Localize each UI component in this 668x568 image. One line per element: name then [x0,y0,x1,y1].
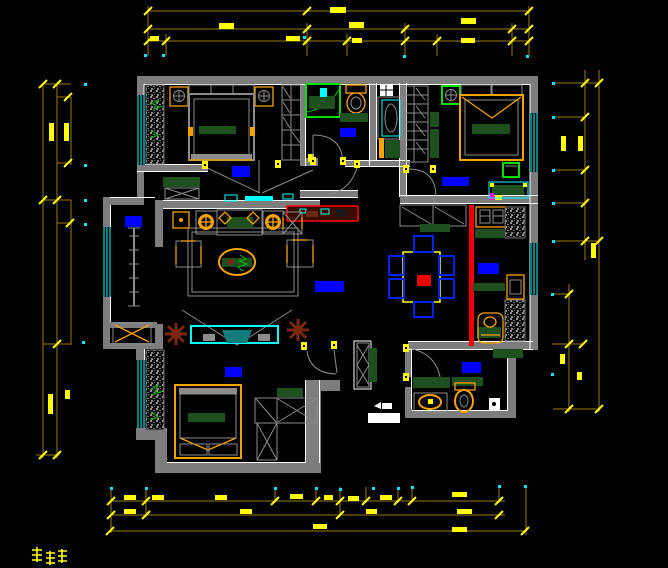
sink-counter [476,207,506,227]
side-table-small [173,212,189,228]
wash-basin-bottom [414,393,447,412]
bedroom-bottom-left [146,350,317,460]
shelf-wardrobe [282,85,301,160]
floor-drain [489,398,500,410]
room-label-bedroom-tl [232,166,250,177]
shelved-wardrobe [406,86,428,162]
desk-chair [503,163,519,177]
dimension-text-blocks [48,7,596,532]
floorplan-drawing [0,0,668,568]
tall-cabinet-hatch [505,300,525,341]
room-label-kitchen [478,263,499,274]
lamp-table-right [263,211,283,234]
table-center [417,275,431,286]
bedroom-tr-door [403,165,436,197]
bathroom-top [306,84,403,168]
refrigerator [505,207,525,238]
double-bed-with-drawers [175,385,241,458]
plant-right [287,319,309,341]
nightstand-right [255,87,273,106]
room-label-bedroom-bl [225,367,242,377]
sliding-door-symbol [202,154,314,201]
room-label-entry [462,362,481,373]
room-label-bedroom-tr [442,177,469,186]
room-label-balcony [125,216,142,227]
hatched-closet [146,85,164,164]
shoe-cabinet [400,205,466,232]
armchair-right [287,240,313,267]
counter-strip [385,140,400,158]
double-bed [188,85,255,160]
entry-threshold [368,413,400,423]
lamp-table-left [196,211,217,234]
room-label-bathroom [340,128,356,137]
axis-end-glyphs [32,547,67,565]
room-label-living [315,281,344,292]
washer [493,349,523,358]
shower-enclosure [306,84,340,117]
wall-cabinet [507,275,524,299]
toilet [346,85,366,113]
shoe-bench-1 [413,377,450,388]
bedroom-top-right [406,85,528,198]
dining-room [389,205,474,346]
green-nightstand [442,86,460,104]
floor-mat [340,113,368,122]
sideboard [163,177,200,187]
sofa [217,210,262,235]
cad-floorplan-viewport [0,0,668,568]
x-frame-console [165,188,199,199]
double-bed [460,85,523,160]
entry-marker [374,402,392,409]
plant-left [165,323,187,345]
red-console [287,206,358,221]
tile-niche [380,85,393,96]
counter-2 [473,283,505,291]
nightstand-left [170,87,188,106]
bedroom-bl-door [301,341,337,374]
tall-x-cabinet [354,341,377,389]
plant-rack [128,228,140,306]
shoe-bench-2 [452,377,483,386]
cabinet-strip [379,138,384,158]
red-slide-track [469,205,474,346]
kitchen [473,207,525,343]
counter-1 [475,229,504,238]
coffee-table [219,249,255,275]
toilet-bottom [455,383,475,412]
counter-3 [477,327,501,338]
dining-table [403,252,440,302]
tv-wall [165,310,309,345]
tv [222,330,252,343]
